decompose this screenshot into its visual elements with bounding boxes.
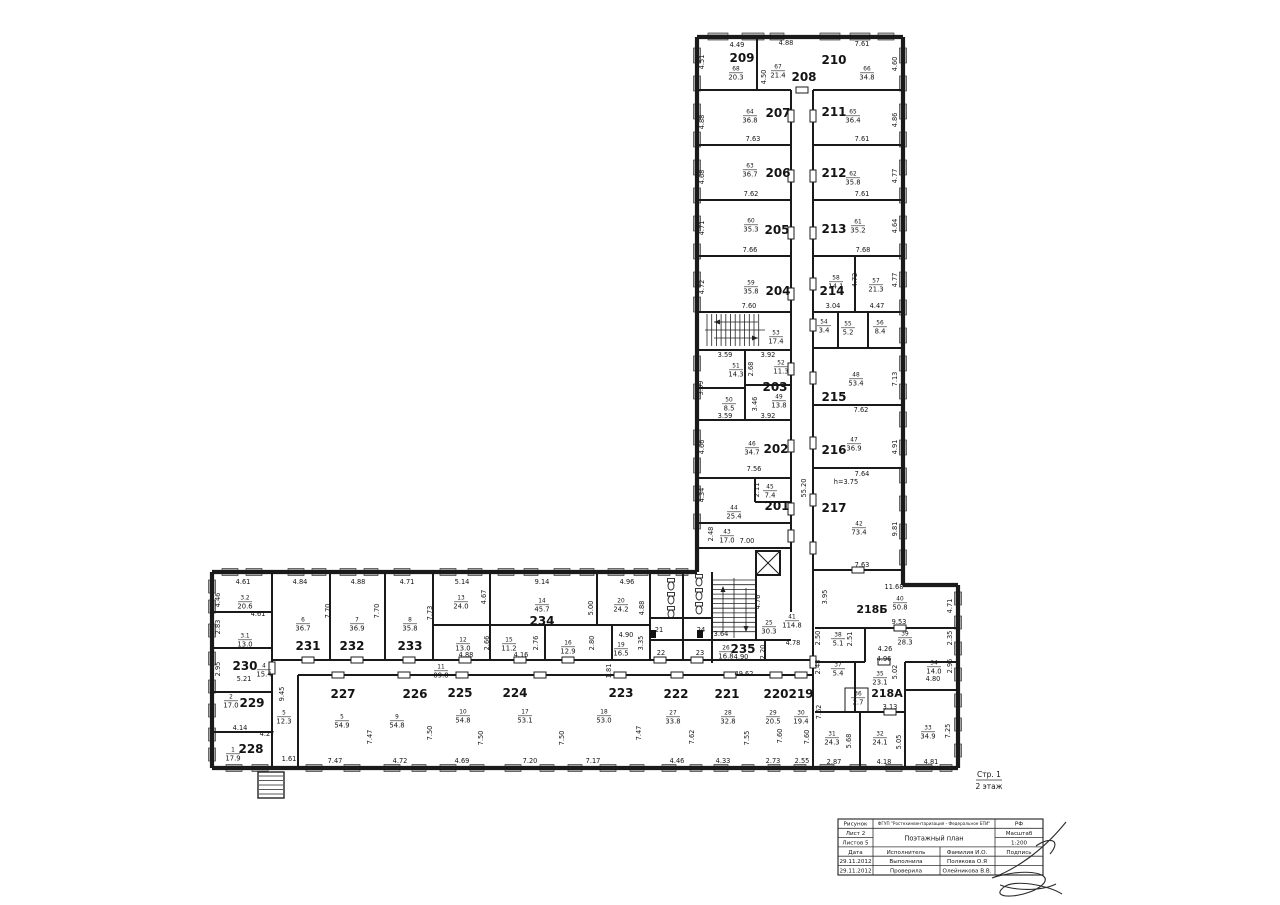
dimension-label: 3.92 xyxy=(761,412,776,420)
room-fraction: 3523.1 xyxy=(872,672,887,687)
svg-text:5.1: 5.1 xyxy=(833,640,844,648)
dimension-label: 4.96 xyxy=(620,578,635,586)
svg-text:4: 4 xyxy=(262,664,266,670)
svg-text:50: 50 xyxy=(725,398,733,404)
room-fraction: 568.4 xyxy=(873,321,887,336)
svg-text:89.8: 89.8 xyxy=(433,672,448,680)
dimension-label: 2.20 xyxy=(759,645,767,660)
svg-text:14.1: 14.1 xyxy=(828,283,843,291)
svg-text:17: 17 xyxy=(521,710,529,716)
room-number: 205 xyxy=(764,223,789,237)
dimension-label: 2.87 xyxy=(827,758,842,766)
svg-text:38: 38 xyxy=(834,633,842,639)
dimension-label: 3.92 xyxy=(761,351,776,359)
dimension-label: 4.90 xyxy=(619,631,634,639)
room-number: 213 xyxy=(821,222,846,236)
svg-text:12.9: 12.9 xyxy=(560,648,575,656)
room-number: 234 xyxy=(529,614,554,628)
room-fraction: 4634.7 xyxy=(744,442,759,457)
svg-text:5.2: 5.2 xyxy=(843,329,854,337)
tb-rf: РФ xyxy=(1015,822,1023,828)
svg-text:16.5: 16.5 xyxy=(613,650,628,658)
dimension-label: 3.59 xyxy=(718,351,733,359)
dimension-label: 5.00 xyxy=(587,601,595,616)
svg-text:28: 28 xyxy=(724,711,732,717)
svg-text:43: 43 xyxy=(723,530,731,536)
room-fraction: 2920.5 xyxy=(765,711,780,726)
room-fraction: 1916.5 xyxy=(613,643,628,658)
tb-row1-role: Выполнила xyxy=(889,859,922,865)
dimension-label: 2.11 xyxy=(753,483,761,498)
dimension-label: 4.71 xyxy=(698,221,706,236)
room-number: 202 xyxy=(763,442,788,456)
room-fraction: 5114.3 xyxy=(728,364,743,379)
room-fraction: 954.8 xyxy=(389,715,404,730)
door xyxy=(788,363,794,375)
svg-text:35.2: 35.2 xyxy=(850,227,865,235)
room-fraction: 3124.3 xyxy=(824,732,839,747)
room-fraction: 375.4 xyxy=(831,663,845,678)
dimension-label: 2.76 xyxy=(532,636,540,651)
staircase-upper xyxy=(705,314,765,346)
room-number: 201 xyxy=(764,499,789,513)
dimension-label: 7.64 xyxy=(855,470,870,478)
entrance-steps xyxy=(258,772,284,798)
title-block: Рисунок ФГУП "Ростехинвентаризация - Фед… xyxy=(838,819,1066,896)
room-fraction: 5317.4 xyxy=(768,331,783,346)
room-number: 210 xyxy=(821,53,846,67)
svg-text:35.8: 35.8 xyxy=(743,288,758,296)
svg-text:36.8: 36.8 xyxy=(742,117,757,125)
room-fraction: 508.5 xyxy=(722,398,736,413)
svg-text:58: 58 xyxy=(832,276,840,282)
svg-text:34.7: 34.7 xyxy=(744,449,759,457)
svg-text:52: 52 xyxy=(777,361,785,367)
svg-text:36.7: 36.7 xyxy=(295,625,310,633)
svg-text:25.4: 25.4 xyxy=(726,513,741,521)
svg-text:54.8: 54.8 xyxy=(389,722,404,730)
svg-text:18: 18 xyxy=(600,710,608,716)
svg-text:17.4: 17.4 xyxy=(768,338,783,346)
svg-text:23.1: 23.1 xyxy=(872,679,887,687)
room-fraction: 1054.8 xyxy=(455,710,470,725)
room-fraction: 217.0 xyxy=(223,695,238,710)
room-number: 218А xyxy=(871,687,903,700)
room-fraction: 6336.7 xyxy=(742,164,757,179)
dimension-label: 7.68 xyxy=(856,246,871,254)
dimension-label: 4.72 xyxy=(393,757,408,765)
dimension-label: 2.95 xyxy=(214,662,222,677)
room-number: 231 xyxy=(295,639,320,653)
room-number: 230 xyxy=(232,659,257,673)
dimension-label: 4.68 xyxy=(698,170,706,185)
svg-text:53.4: 53.4 xyxy=(848,380,863,388)
svg-text:33: 33 xyxy=(924,726,932,732)
dimension-label: 2.51 xyxy=(846,632,854,647)
dimension-label: 4.34 xyxy=(698,488,706,503)
dimension-label: 3.64 xyxy=(714,630,729,638)
room-fraction: 5935.8 xyxy=(743,281,758,296)
dimension-label: 3.35 xyxy=(637,636,645,651)
tb-row1-date: 29.11.2012 xyxy=(839,859,871,865)
door xyxy=(810,319,816,331)
dimension-label: 1.81 xyxy=(605,664,613,679)
dimension-label: 5.14 xyxy=(455,578,470,586)
dimension-label: 9.53 xyxy=(892,618,907,626)
dimension-label: 7.70 xyxy=(324,604,332,619)
dimension-label: 7.70 xyxy=(373,604,381,619)
dimension-label: 3.99 xyxy=(697,381,705,396)
room-fraction: 555.2 xyxy=(841,322,855,337)
svg-text:28.3: 28.3 xyxy=(897,639,912,647)
svg-text:36: 36 xyxy=(854,692,862,698)
room-fraction: 736.9 xyxy=(349,618,364,633)
door xyxy=(332,672,344,678)
toilet-icon xyxy=(668,579,675,591)
svg-text:17.0: 17.0 xyxy=(719,537,734,545)
dimension-label: 4.84 xyxy=(293,578,308,586)
svg-text:66: 66 xyxy=(863,67,871,73)
dimension-label: 2.66 xyxy=(483,636,491,651)
room-fraction: 6436.8 xyxy=(742,110,757,125)
svg-text:11: 11 xyxy=(437,665,445,671)
svg-text:16.8: 16.8 xyxy=(718,653,733,661)
svg-text:7: 7 xyxy=(355,618,359,624)
room-number: 224 xyxy=(502,686,527,700)
svg-text:49: 49 xyxy=(775,395,783,401)
svg-text:40: 40 xyxy=(896,597,904,603)
dimension-label: 3.13 xyxy=(883,703,898,711)
dimension-label: 7.61 xyxy=(855,190,870,198)
room-fraction: 1753.1 xyxy=(517,710,532,725)
dimension-label: 4.77 xyxy=(891,273,899,288)
dimension-label: 2.35 xyxy=(946,631,954,646)
svg-text:44: 44 xyxy=(730,506,738,512)
room-fraction: 6135.2 xyxy=(850,220,865,235)
room-number: 209 xyxy=(729,51,754,65)
room-number: 222 xyxy=(663,687,688,701)
room-number: 226 xyxy=(402,687,427,701)
room-fraction: 1324.0 xyxy=(453,596,468,611)
dimension-label: 7.20 xyxy=(523,757,538,765)
svg-text:51: 51 xyxy=(732,364,740,370)
svg-text:12.3: 12.3 xyxy=(276,718,291,726)
dimension-label: 7.00 xyxy=(740,537,755,545)
dimension-label: 2.48 xyxy=(707,527,715,542)
dimension-label: 5.02 xyxy=(891,665,899,680)
room-fraction: 5814.1 xyxy=(828,276,843,291)
dimension-label: 55.20 xyxy=(800,479,808,498)
door xyxy=(810,227,816,239)
dimension-label: 4.88 xyxy=(351,578,366,586)
svg-text:54.9: 54.9 xyxy=(334,722,349,730)
tb-name-label: Фамилия И.О. xyxy=(947,850,988,856)
room-fraction: 2733.8 xyxy=(665,711,680,726)
room-fraction: 2024.2 xyxy=(613,599,628,614)
room-fraction: 6634.8 xyxy=(859,67,874,82)
dimension-label: 7.63 xyxy=(855,561,870,569)
room-fraction: 4913.8 xyxy=(771,395,786,410)
dimension-label: 49.62 xyxy=(735,670,754,678)
room-number: 225 xyxy=(447,686,472,700)
svg-text:57: 57 xyxy=(872,279,880,285)
room-number: 219 xyxy=(788,687,813,701)
dimension-label: 7.60 xyxy=(776,729,784,744)
room-fraction: 3019.4 xyxy=(793,711,808,726)
room-fraction: 6721.4 xyxy=(770,65,785,80)
dimension-label: 7.62 xyxy=(854,406,869,414)
svg-text:41: 41 xyxy=(788,615,796,621)
room-fraction: 6235.8 xyxy=(845,172,860,187)
dimension-label: 4.76 xyxy=(754,595,762,610)
dimension-label: 7.63 xyxy=(746,135,761,143)
dimension-label: 24 xyxy=(697,626,705,634)
svg-text:8: 8 xyxy=(408,618,412,624)
room-number: 233 xyxy=(397,639,422,653)
elevator xyxy=(756,551,780,575)
dimension-label: 7.17 xyxy=(586,757,601,765)
dimension-label: 4.18 xyxy=(877,758,892,766)
room-fraction: 636.7 xyxy=(295,618,310,633)
svg-text:5: 5 xyxy=(340,715,344,721)
svg-text:19: 19 xyxy=(617,643,625,649)
svg-text:67: 67 xyxy=(774,65,782,71)
svg-text:55: 55 xyxy=(844,322,852,328)
svg-text:5.4: 5.4 xyxy=(833,670,844,678)
svg-text:27: 27 xyxy=(669,711,677,717)
svg-text:30: 30 xyxy=(797,711,805,717)
door xyxy=(562,657,574,663)
dimension-label: 7.47 xyxy=(366,730,374,745)
room-number: 228 xyxy=(238,742,263,756)
dimension-label: 7.50 xyxy=(558,731,566,746)
dimension-label: 9.45 xyxy=(278,687,286,702)
tb-doc-title: Поэтажный план xyxy=(904,835,963,843)
room-fraction: 1612.9 xyxy=(560,641,575,656)
svg-text:25: 25 xyxy=(765,621,773,627)
svg-text:17.0: 17.0 xyxy=(223,702,238,710)
room-number: 232 xyxy=(339,639,364,653)
tb-row2-name: Олейникова В.В. xyxy=(943,867,992,874)
svg-text:34.8: 34.8 xyxy=(859,74,874,82)
toilet-icon xyxy=(668,607,675,619)
dimension-label: 4.33 xyxy=(716,757,731,765)
door xyxy=(810,278,816,290)
room-fraction: 4050.8 xyxy=(892,597,907,612)
room-number: 211 xyxy=(821,105,846,119)
room-number: 227 xyxy=(330,687,355,701)
door xyxy=(810,437,816,449)
svg-text:37: 37 xyxy=(834,663,842,669)
door xyxy=(810,372,816,384)
dimension-label: 2.50 xyxy=(814,631,822,646)
toilet-icon xyxy=(668,593,675,605)
room-fraction: 512.3 xyxy=(276,711,291,726)
dimension-label: 4.71 xyxy=(400,578,415,586)
room-fraction: 3928.3 xyxy=(897,632,912,647)
toilet-icon xyxy=(696,589,703,601)
svg-text:50.8: 50.8 xyxy=(892,604,907,612)
room-fraction: 6536.4 xyxy=(845,110,860,125)
door xyxy=(810,170,816,182)
dimension-label: 4.91 xyxy=(891,440,899,455)
dimension-label: 21 xyxy=(655,626,663,634)
svg-text:13.8: 13.8 xyxy=(771,402,786,410)
door xyxy=(351,657,363,663)
room-number: 215 xyxy=(821,390,846,404)
room-fraction: 4273.4 xyxy=(851,522,866,537)
dimension-label: 4.16 xyxy=(514,651,529,659)
svg-text:53.1: 53.1 xyxy=(517,717,532,725)
svg-text:11.3: 11.3 xyxy=(773,368,788,376)
dimension-label: 7.47 xyxy=(635,726,643,741)
dimension-label: 7.55 xyxy=(743,731,751,746)
svg-text:16: 16 xyxy=(564,641,572,647)
svg-text:30.3: 30.3 xyxy=(761,628,776,636)
svg-text:59: 59 xyxy=(747,281,755,287)
dimension-label: 3.46 xyxy=(751,397,759,412)
svg-text:35.8: 35.8 xyxy=(845,179,860,187)
dimension-label: h=3.75 xyxy=(834,478,858,486)
dimension-label: 4.78 xyxy=(786,639,801,647)
dimension-label: 4.88 xyxy=(779,39,794,47)
svg-text:62: 62 xyxy=(849,172,857,178)
dimension-label: 4.96 xyxy=(877,655,892,663)
dimension-label: 2.80 xyxy=(588,636,596,651)
dimension-label: 4.86 xyxy=(891,113,899,128)
dimension-label: 9.14 xyxy=(535,578,550,586)
door xyxy=(810,542,816,554)
room-number: 229 xyxy=(239,696,264,710)
door xyxy=(654,657,666,663)
room-fraction: 385.1 xyxy=(831,633,845,648)
page-note-line2: 2 этаж xyxy=(976,782,1003,791)
svg-text:35: 35 xyxy=(876,672,884,678)
room-fraction: 543.4 xyxy=(817,320,831,335)
svg-text:34: 34 xyxy=(930,661,938,667)
room-number: 207 xyxy=(765,106,790,120)
tb-row1-name: Полякова О.Я xyxy=(947,859,987,865)
room-fraction: 362.7 xyxy=(851,692,865,707)
dimension-label: 4.69 xyxy=(455,757,470,765)
tb-row2-date: 29.11.2012 xyxy=(839,868,871,874)
svg-text:6: 6 xyxy=(301,618,305,624)
door xyxy=(614,672,626,678)
dimension-label: 4.49 xyxy=(730,41,745,49)
svg-text:14: 14 xyxy=(538,599,546,605)
door xyxy=(810,110,816,122)
room-number: 223 xyxy=(608,686,633,700)
dimension-label: 7.73 xyxy=(426,606,434,621)
room-number: 203 xyxy=(762,380,787,394)
dimension-label: 4.72 xyxy=(851,273,859,288)
svg-text:9: 9 xyxy=(395,715,399,721)
svg-text:45: 45 xyxy=(766,485,774,491)
svg-text:36.7: 36.7 xyxy=(742,171,757,179)
door xyxy=(788,440,794,452)
dimension-label: 22 xyxy=(657,649,665,657)
room-fraction: 3224.1 xyxy=(872,732,887,747)
room-fraction: 3.113.0 xyxy=(237,634,252,649)
door xyxy=(398,672,410,678)
room-fraction: 2832.8 xyxy=(720,711,735,726)
dimension-label: 7.61 xyxy=(855,40,870,48)
dimension-label: 2.48 xyxy=(814,660,822,675)
dimension-label: 7.61 xyxy=(855,135,870,143)
svg-text:35.3: 35.3 xyxy=(743,226,758,234)
svg-text:14.3: 14.3 xyxy=(728,371,743,379)
svg-text:34.9: 34.9 xyxy=(920,733,935,741)
tb-sheets: Листов 5 xyxy=(842,841,869,847)
tb-sheet: Лист 2 xyxy=(846,831,866,837)
room-number: 206 xyxy=(765,166,790,180)
svg-text:26: 26 xyxy=(722,646,730,652)
svg-text:15.4: 15.4 xyxy=(256,671,271,679)
svg-text:10: 10 xyxy=(459,710,467,716)
room-number: 217 xyxy=(821,501,846,515)
room-number: 220 xyxy=(763,687,788,701)
door xyxy=(810,494,816,506)
dimension-label: 4.88 xyxy=(459,651,474,659)
door xyxy=(456,672,468,678)
svg-text:64: 64 xyxy=(746,110,754,116)
room-fraction: 554.9 xyxy=(334,715,349,730)
svg-text:73.4: 73.4 xyxy=(851,529,866,537)
dimension-label: 3.95 xyxy=(821,590,829,605)
room-fraction: 835.8 xyxy=(402,618,417,633)
toilet-icon xyxy=(696,603,703,615)
door xyxy=(796,87,808,93)
dimension-label: 4.27 xyxy=(260,730,275,738)
dimension-label: 4.80 xyxy=(926,675,941,683)
svg-text:7.4: 7.4 xyxy=(765,492,776,500)
door xyxy=(671,672,683,678)
svg-text:20: 20 xyxy=(617,599,625,605)
tb-role-label: Исполнитель xyxy=(887,850,926,856)
room-fraction: 4425.4 xyxy=(726,506,741,521)
door xyxy=(302,657,314,663)
page-note-line1: Стр. 1 xyxy=(977,770,1001,779)
floor-plan-page: 2092082102072112062122052132042142032152… xyxy=(0,0,1280,905)
dimension-label: 4.47 xyxy=(870,302,885,310)
dimension-label: 2.55 xyxy=(795,757,810,765)
svg-text:5: 5 xyxy=(282,711,286,717)
dimension-label: 4.46 xyxy=(214,593,222,608)
room-fraction: 4317.0 xyxy=(719,530,734,545)
svg-text:15: 15 xyxy=(505,638,513,644)
svg-text:48: 48 xyxy=(852,373,860,379)
svg-text:46: 46 xyxy=(748,442,756,448)
dimension-label: 4.66 xyxy=(698,440,706,455)
room-number: 208 xyxy=(791,70,816,84)
room-fraction: 3334.9 xyxy=(920,726,935,741)
dimension-label: 9.81 xyxy=(891,522,899,537)
dimension-label: 4.71 xyxy=(946,599,954,614)
svg-text:54: 54 xyxy=(820,320,828,326)
dimension-label: 4.81 xyxy=(924,758,939,766)
room-fraction: 3.220.6 xyxy=(237,596,252,611)
dimension-label: 7.25 xyxy=(944,724,952,739)
room-fraction: 4853.4 xyxy=(848,373,863,388)
svg-text:29: 29 xyxy=(769,711,777,717)
dimension-label: 4.88 xyxy=(638,601,646,616)
svg-text:31: 31 xyxy=(828,732,836,738)
toilet-icon xyxy=(696,575,703,587)
svg-text:39: 39 xyxy=(901,632,909,638)
dimension-label: 4.67 xyxy=(480,590,488,605)
tb-sign-label: Подпись xyxy=(1006,850,1031,856)
dimension-label: 23 xyxy=(696,649,704,657)
